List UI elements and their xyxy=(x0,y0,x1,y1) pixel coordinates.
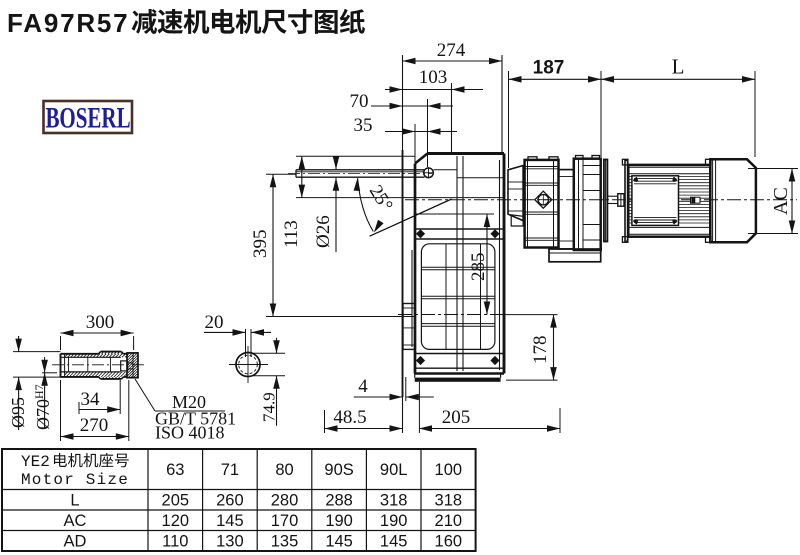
svg-text:70: 70 xyxy=(350,91,369,112)
svg-text:145: 145 xyxy=(380,533,408,551)
svg-text:L: L xyxy=(70,492,79,510)
svg-text:205: 205 xyxy=(162,492,190,510)
svg-text:20: 20 xyxy=(205,312,224,333)
svg-text:205: 205 xyxy=(442,407,471,428)
svg-text:120: 120 xyxy=(162,512,190,530)
svg-text:280: 280 xyxy=(271,492,299,510)
svg-text:100: 100 xyxy=(435,461,463,479)
svg-text:170: 170 xyxy=(271,512,299,530)
svg-text:395: 395 xyxy=(250,230,271,259)
svg-text:4: 4 xyxy=(358,376,368,397)
svg-text:210: 210 xyxy=(435,512,463,530)
svg-text:285: 285 xyxy=(468,253,489,282)
svg-text:270: 270 xyxy=(80,415,109,436)
svg-text:AC: AC xyxy=(770,187,792,215)
svg-text:318: 318 xyxy=(435,492,463,510)
svg-text:Motor Size: Motor Size xyxy=(21,471,129,489)
svg-text:135: 135 xyxy=(271,533,299,551)
svg-text:113: 113 xyxy=(281,220,302,248)
svg-text:71: 71 xyxy=(221,461,239,479)
svg-text:34: 34 xyxy=(81,389,101,410)
svg-text:300: 300 xyxy=(86,312,115,333)
svg-text:260: 260 xyxy=(216,492,244,510)
svg-text:145: 145 xyxy=(325,533,353,551)
svg-text:74.9: 74.9 xyxy=(260,392,279,422)
svg-text:48.5: 48.5 xyxy=(333,407,366,428)
svg-text:130: 130 xyxy=(216,533,244,551)
svg-text:90L: 90L xyxy=(380,461,408,479)
svg-text:AD: AD xyxy=(64,533,87,551)
svg-text:178: 178 xyxy=(530,336,551,365)
svg-text:80: 80 xyxy=(275,461,293,479)
svg-text:BOSERL: BOSERL xyxy=(45,101,130,135)
svg-text:YE2: YE2 xyxy=(21,453,50,471)
svg-text:Ø26: Ø26 xyxy=(313,215,334,248)
svg-text:FA97R57: FA97R57 xyxy=(7,8,129,38)
svg-text:160: 160 xyxy=(435,533,463,551)
svg-text:190: 190 xyxy=(380,512,408,530)
svg-text:35: 35 xyxy=(354,115,373,136)
svg-text:187: 187 xyxy=(533,58,565,79)
svg-text:103: 103 xyxy=(419,67,448,88)
svg-text:110: 110 xyxy=(162,533,188,551)
svg-text:L: L xyxy=(672,55,685,79)
svg-text:288: 288 xyxy=(325,492,353,510)
svg-text:318: 318 xyxy=(380,492,408,510)
svg-text:63: 63 xyxy=(166,461,184,479)
svg-text:AC: AC xyxy=(64,512,87,530)
svg-text:ISO 4018: ISO 4018 xyxy=(155,423,225,443)
svg-text:Ø95: Ø95 xyxy=(8,397,28,428)
svg-text:90S: 90S xyxy=(324,461,353,479)
svg-text:145: 145 xyxy=(216,512,244,530)
svg-text:274: 274 xyxy=(437,40,466,61)
svg-text:190: 190 xyxy=(325,512,353,530)
